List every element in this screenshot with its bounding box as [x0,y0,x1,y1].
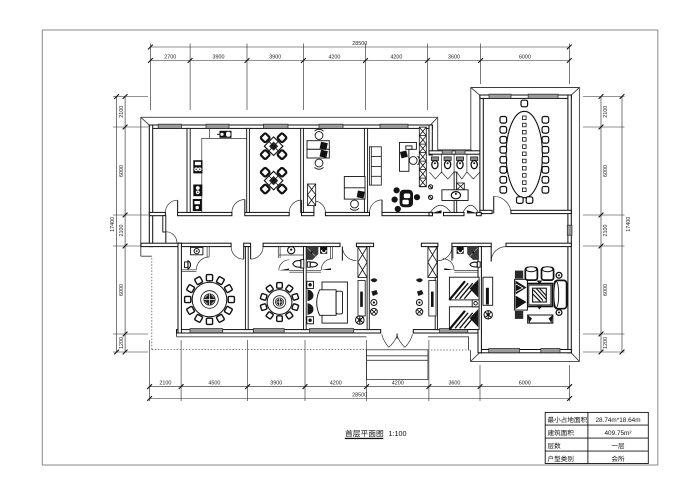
svg-text:6000: 6000 [119,284,125,296]
svg-text:3600: 3600 [448,54,460,60]
svg-text:4200: 4200 [390,54,402,60]
svg-text:2100: 2100 [119,106,125,118]
svg-text:409.75m²: 409.75m² [605,430,632,437]
svg-text:17400: 17400 [626,217,632,232]
svg-text:17400: 17400 [110,217,116,232]
svg-text:1200: 1200 [603,337,609,349]
svg-text:6000: 6000 [603,165,609,177]
svg-text:2100: 2100 [119,225,125,237]
svg-text:3900: 3900 [270,380,282,386]
svg-text:4200: 4200 [392,380,404,386]
svg-text:2700: 2700 [164,54,176,60]
svg-text:6000: 6000 [603,284,609,296]
svg-text:4200: 4200 [328,54,340,60]
svg-text:2100: 2100 [159,380,171,386]
svg-text:2100: 2100 [603,106,609,118]
svg-text:28.74m*18.64m: 28.74m*18.64m [595,417,640,424]
svg-text:28500: 28500 [352,392,367,398]
svg-text:3900: 3900 [269,54,281,60]
svg-text:28500: 28500 [352,41,367,47]
svg-text:4500: 4500 [208,380,220,386]
svg-text:1:100: 1:100 [389,429,407,438]
svg-text:6000: 6000 [119,165,125,177]
svg-text:6000: 6000 [519,54,531,60]
svg-text:3900: 3900 [213,54,225,60]
svg-text:4200: 4200 [330,380,342,386]
svg-text:1200: 1200 [119,337,125,349]
svg-text:3600: 3600 [448,380,460,386]
svg-text:6000: 6000 [519,380,531,386]
svg-text:2100: 2100 [603,225,609,237]
